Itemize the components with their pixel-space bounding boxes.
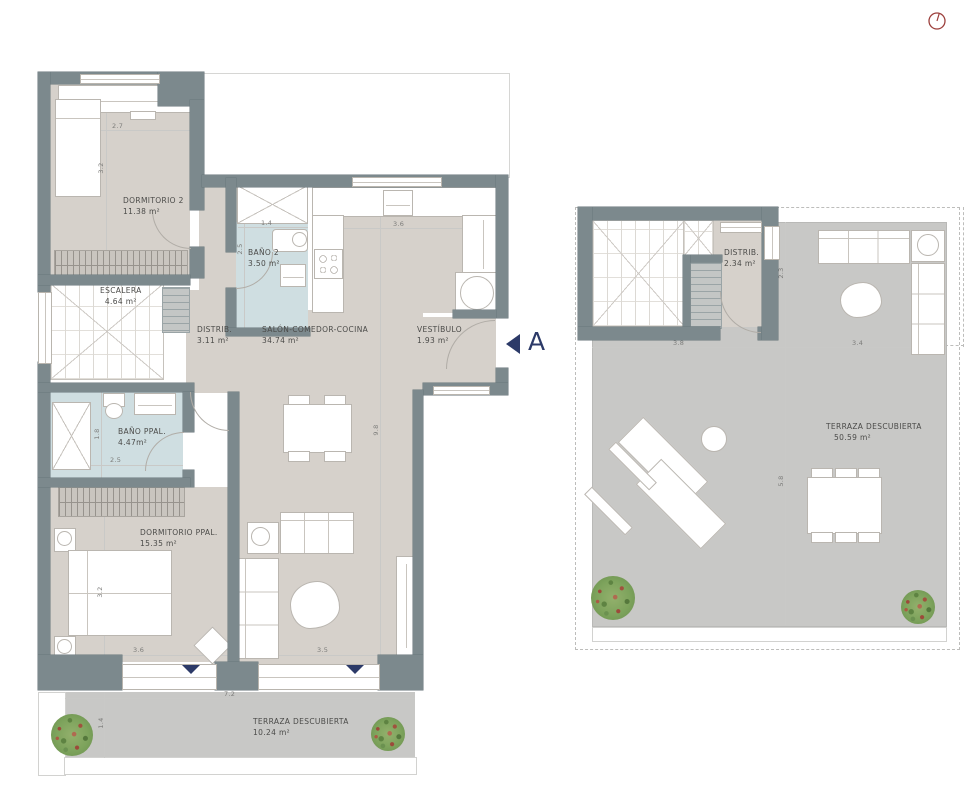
dining-table (807, 477, 882, 534)
wall (578, 207, 778, 220)
dimension-label: 3.4 (852, 339, 863, 347)
room-area: 50.59 m² (826, 433, 922, 444)
dimension-line (592, 347, 945, 348)
plant-icon (591, 576, 635, 620)
window (720, 222, 762, 233)
chair (811, 532, 833, 543)
dimension-line (785, 222, 786, 625)
room-label-terraza-roof: TERRAZA DESCUBIERTA 50.59 m² (826, 422, 922, 443)
window (764, 226, 780, 260)
stairwell-roof (592, 220, 685, 327)
lamp (917, 234, 939, 256)
wall (578, 327, 720, 340)
floor-plan-roof-level: DISTRIB. 2.34 m² TERRAZA DESCUBIERTA 50.… (0, 0, 969, 810)
stairwell-roof (683, 220, 714, 257)
chair (835, 532, 857, 543)
dimension-label: 5.8 (777, 475, 785, 486)
room-name: TERRAZA DESCUBIERTA (826, 422, 922, 433)
stair-steps (690, 262, 722, 329)
outdoor-sofa (911, 263, 945, 355)
room-label-distrib-roof: DISTRIB. 2.34 m² (724, 248, 759, 269)
roof-overhang-outline (963, 207, 964, 347)
round-table (701, 426, 727, 452)
plant-icon (901, 590, 935, 624)
outdoor-sofa (818, 230, 910, 264)
dimension-label: 2.3 (777, 267, 785, 278)
wall (578, 207, 592, 340)
floorplan-canvas: A DORMITORIO 2 11.38 m² BAÑO 2 3.50 m² E… (0, 0, 969, 810)
terrace-edge-band (592, 627, 947, 642)
dimension-label: 3.8 (673, 339, 684, 347)
wall (683, 255, 690, 327)
room-name: DISTRIB. (724, 248, 759, 259)
room-area: 2.34 m² (724, 259, 759, 270)
roof-overhang-outline (945, 345, 964, 346)
chair (858, 532, 880, 543)
